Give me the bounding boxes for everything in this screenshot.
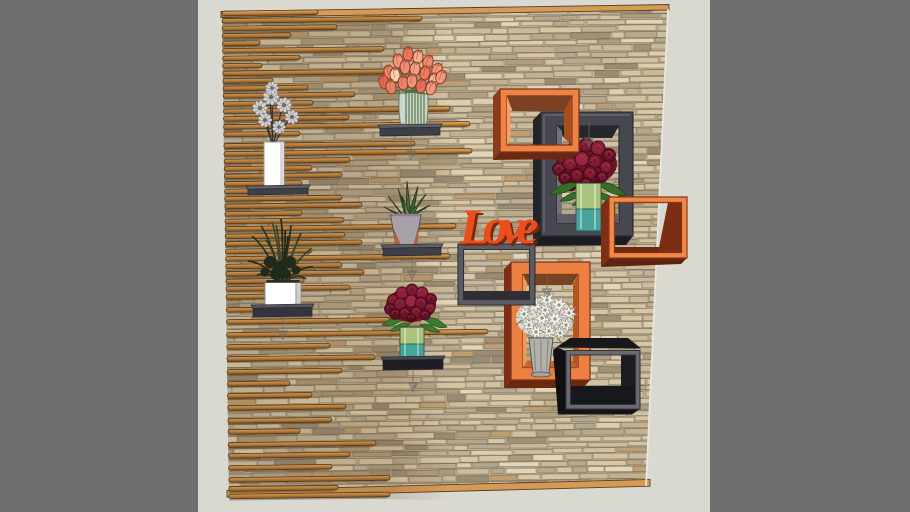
svg-text:Love: Love — [459, 198, 539, 254]
